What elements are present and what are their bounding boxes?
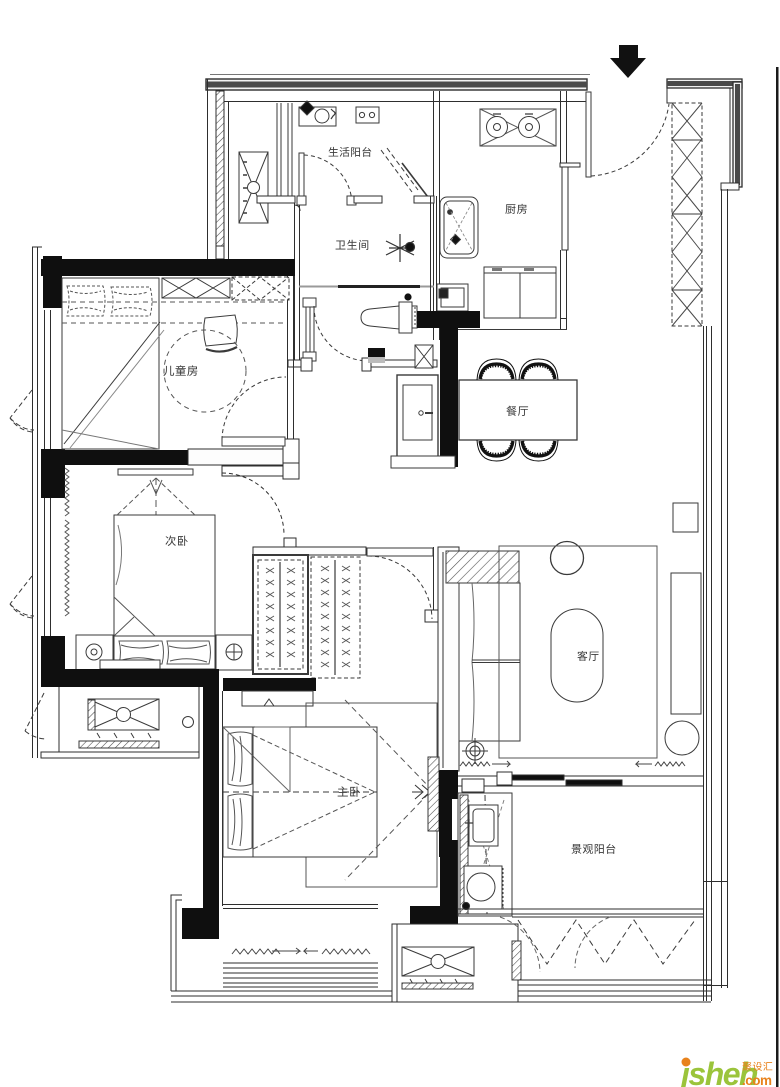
svg-text:.com: .com xyxy=(742,1073,772,1087)
